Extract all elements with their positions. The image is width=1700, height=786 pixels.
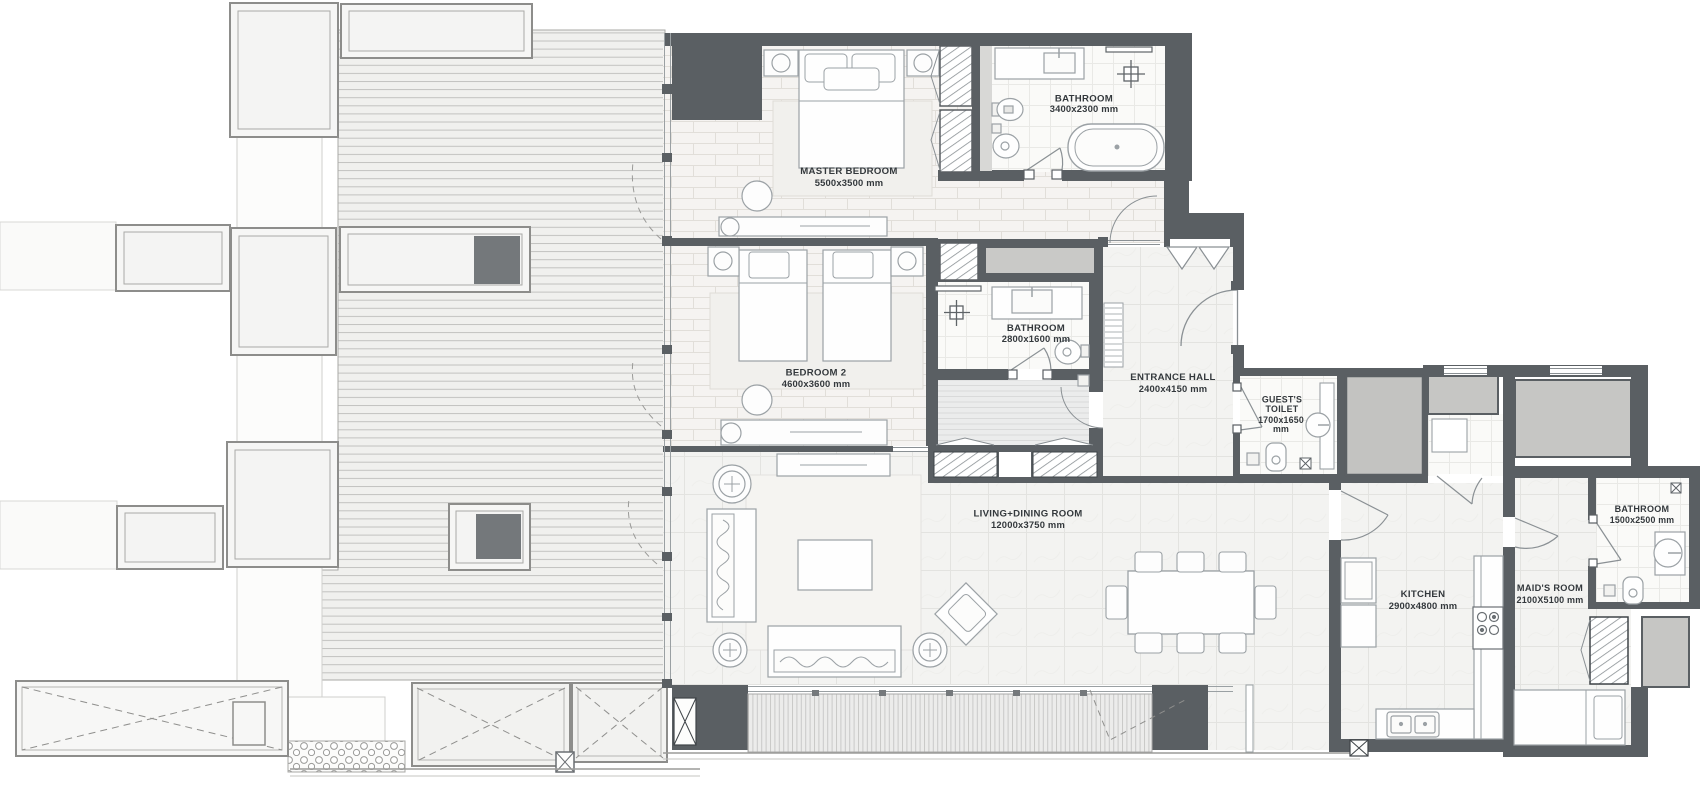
svg-text:BEDROOM 2: BEDROOM 2 <box>786 368 847 379</box>
svg-text:2900x4800 mm: 2900x4800 mm <box>1389 600 1458 611</box>
svg-text:MASTER BEDROOM: MASTER BEDROOM <box>800 166 897 177</box>
svg-text:1500x2500 mm: 1500x2500 mm <box>1610 515 1675 525</box>
svg-text:LIVING+DINING ROOM: LIVING+DINING ROOM <box>973 509 1082 520</box>
svg-text:2400x4150 mm: 2400x4150 mm <box>1139 383 1208 394</box>
svg-text:2800x1600 mm: 2800x1600 mm <box>1002 333 1071 344</box>
svg-text:mm: mm <box>1273 424 1289 434</box>
svg-text:5500x3500 mm: 5500x3500 mm <box>815 177 884 188</box>
svg-text:BATHROOM: BATHROOM <box>1615 504 1670 514</box>
svg-text:GUEST'S: GUEST'S <box>1262 395 1302 405</box>
svg-text:3400x2300 mm: 3400x2300 mm <box>1050 103 1119 114</box>
svg-text:ENTRANCE HALL: ENTRANCE HALL <box>1130 372 1215 383</box>
svg-text:MAID'S ROOM: MAID'S ROOM <box>1517 583 1583 593</box>
svg-text:4600x3600 mm: 4600x3600 mm <box>782 378 851 389</box>
svg-text:KITCHEN: KITCHEN <box>1401 589 1446 600</box>
svg-text:2100X5100 mm: 2100X5100 mm <box>1517 595 1584 605</box>
svg-text:TOILET: TOILET <box>1266 404 1299 414</box>
svg-text:12000x3750 mm: 12000x3750 mm <box>991 519 1065 530</box>
